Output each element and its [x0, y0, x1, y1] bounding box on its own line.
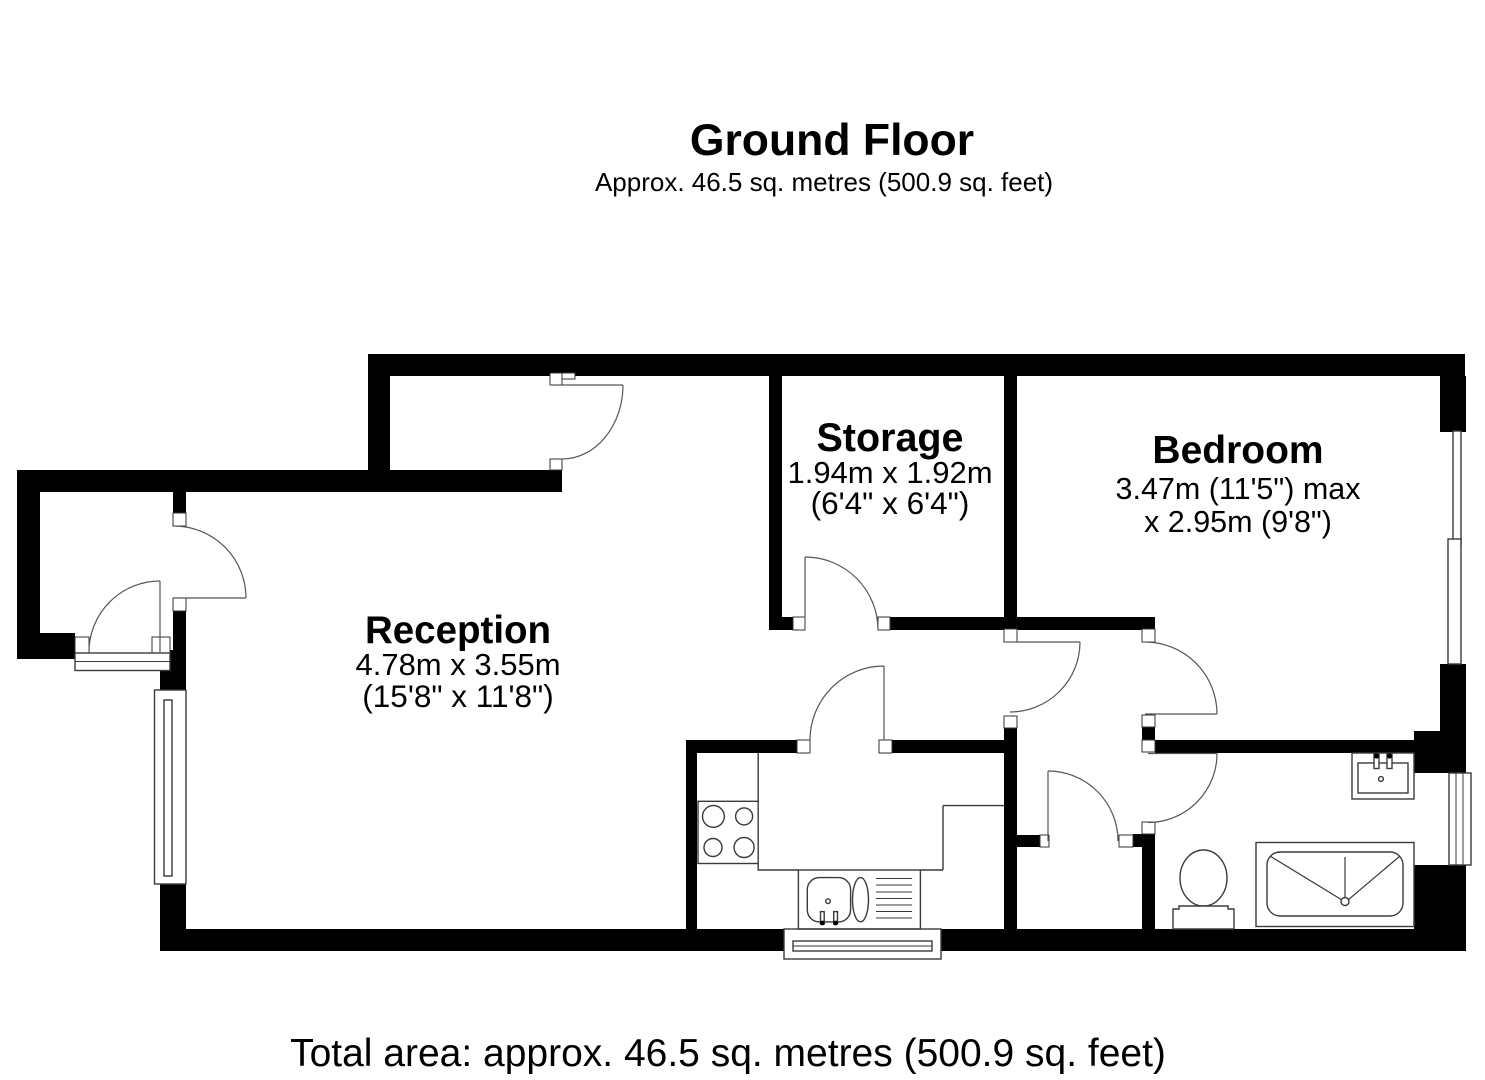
svg-text:3.47m (11'5") max: 3.47m (11'5") max	[1116, 472, 1361, 506]
svg-text:x 2.95m (9'8"): x 2.95m (9'8")	[1144, 505, 1332, 539]
svg-text:Total area: approx. 46.5 sq. m: Total area: approx. 46.5 sq. metres (500…	[290, 1032, 1166, 1075]
svg-text:(15'8" x 11'8"): (15'8" x 11'8")	[362, 678, 553, 714]
svg-text:Reception: Reception	[365, 609, 551, 652]
svg-text:Storage: Storage	[816, 416, 963, 460]
svg-text:Ground Floor: Ground Floor	[690, 116, 974, 165]
svg-text:4.78m x 3.55m: 4.78m x 3.55m	[355, 647, 560, 682]
svg-text:Bedroom: Bedroom	[1152, 429, 1323, 472]
svg-text:(6'4" x 6'4"): (6'4" x 6'4")	[811, 485, 970, 521]
svg-text:Approx. 46.5 sq. metres (500.9: Approx. 46.5 sq. metres (500.9 sq. feet)	[595, 167, 1053, 197]
